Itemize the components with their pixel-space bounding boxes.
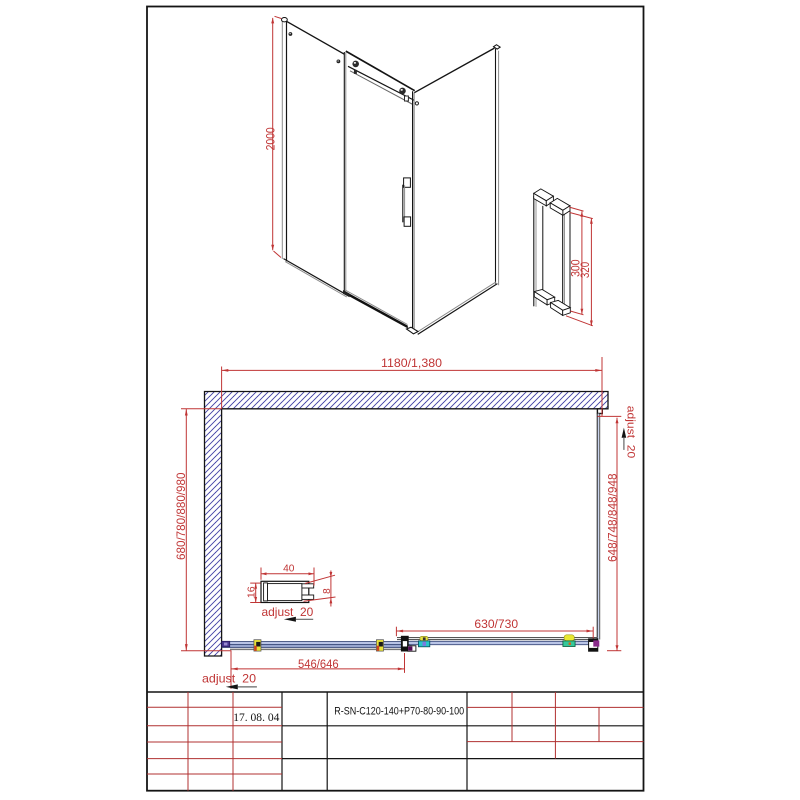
svg-text:630/730: 630/730 <box>474 619 518 631</box>
svg-text:adjust 20: adjust 20 <box>625 406 637 459</box>
svg-text:8: 8 <box>322 588 333 594</box>
svg-text:40: 40 <box>283 563 294 575</box>
svg-text:16: 16 <box>246 586 258 598</box>
svg-text:17. 08. 04: 17. 08. 04 <box>233 710 279 724</box>
svg-text:adjust 20: adjust 20 <box>262 605 314 619</box>
svg-text:546/646: 546/646 <box>298 659 339 671</box>
svg-text:R-SN-C120-140+P70-80-90-100: R-SN-C120-140+P70-80-90-100 <box>334 706 464 718</box>
svg-text:adjust 20: adjust 20 <box>202 672 256 686</box>
svg-text:320: 320 <box>578 262 592 278</box>
svg-text:648/748/848/948: 648/748/848/948 <box>605 473 619 562</box>
svg-text:680/780/880/980: 680/780/880/980 <box>174 472 188 560</box>
svg-text:1180/1,380: 1180/1,380 <box>381 356 442 370</box>
svg-text:2000: 2000 <box>263 127 277 150</box>
